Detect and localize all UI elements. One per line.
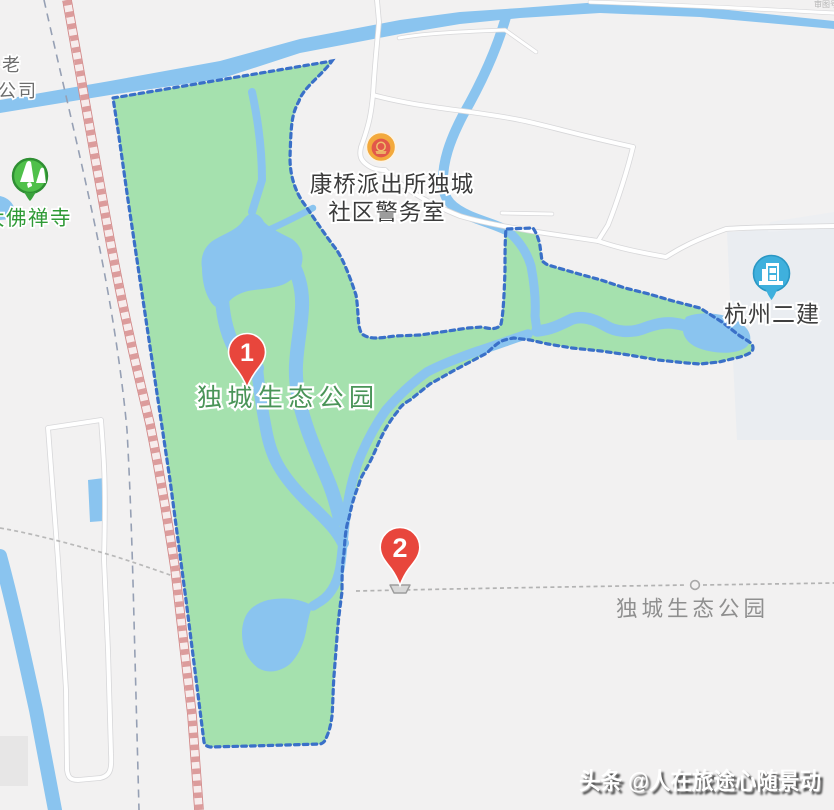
svg-text:康桥派出所独城: 康桥派出所独城 (310, 172, 475, 197)
svg-text:社区警务室: 社区警务室 (328, 200, 446, 225)
svg-text:1: 1 (240, 339, 254, 367)
svg-text:2: 2 (392, 533, 407, 563)
svg-text:杭州二建: 杭州二建 (724, 301, 820, 327)
svg-text:大佛禅寺: 大佛禅寺 (0, 207, 72, 230)
svg-text:独城生态公园: 独城生态公园 (197, 384, 379, 412)
svg-text:独城生态公园: 独城生态公园 (616, 597, 769, 621)
svg-text:老: 老 (2, 55, 20, 75)
svg-text:头条 @人在旅途心随景动: 头条 @人在旅途心随景动 (579, 767, 821, 794)
svg-text:审图号: 审图号 (814, 0, 834, 9)
svg-text:公司: 公司 (0, 81, 38, 101)
